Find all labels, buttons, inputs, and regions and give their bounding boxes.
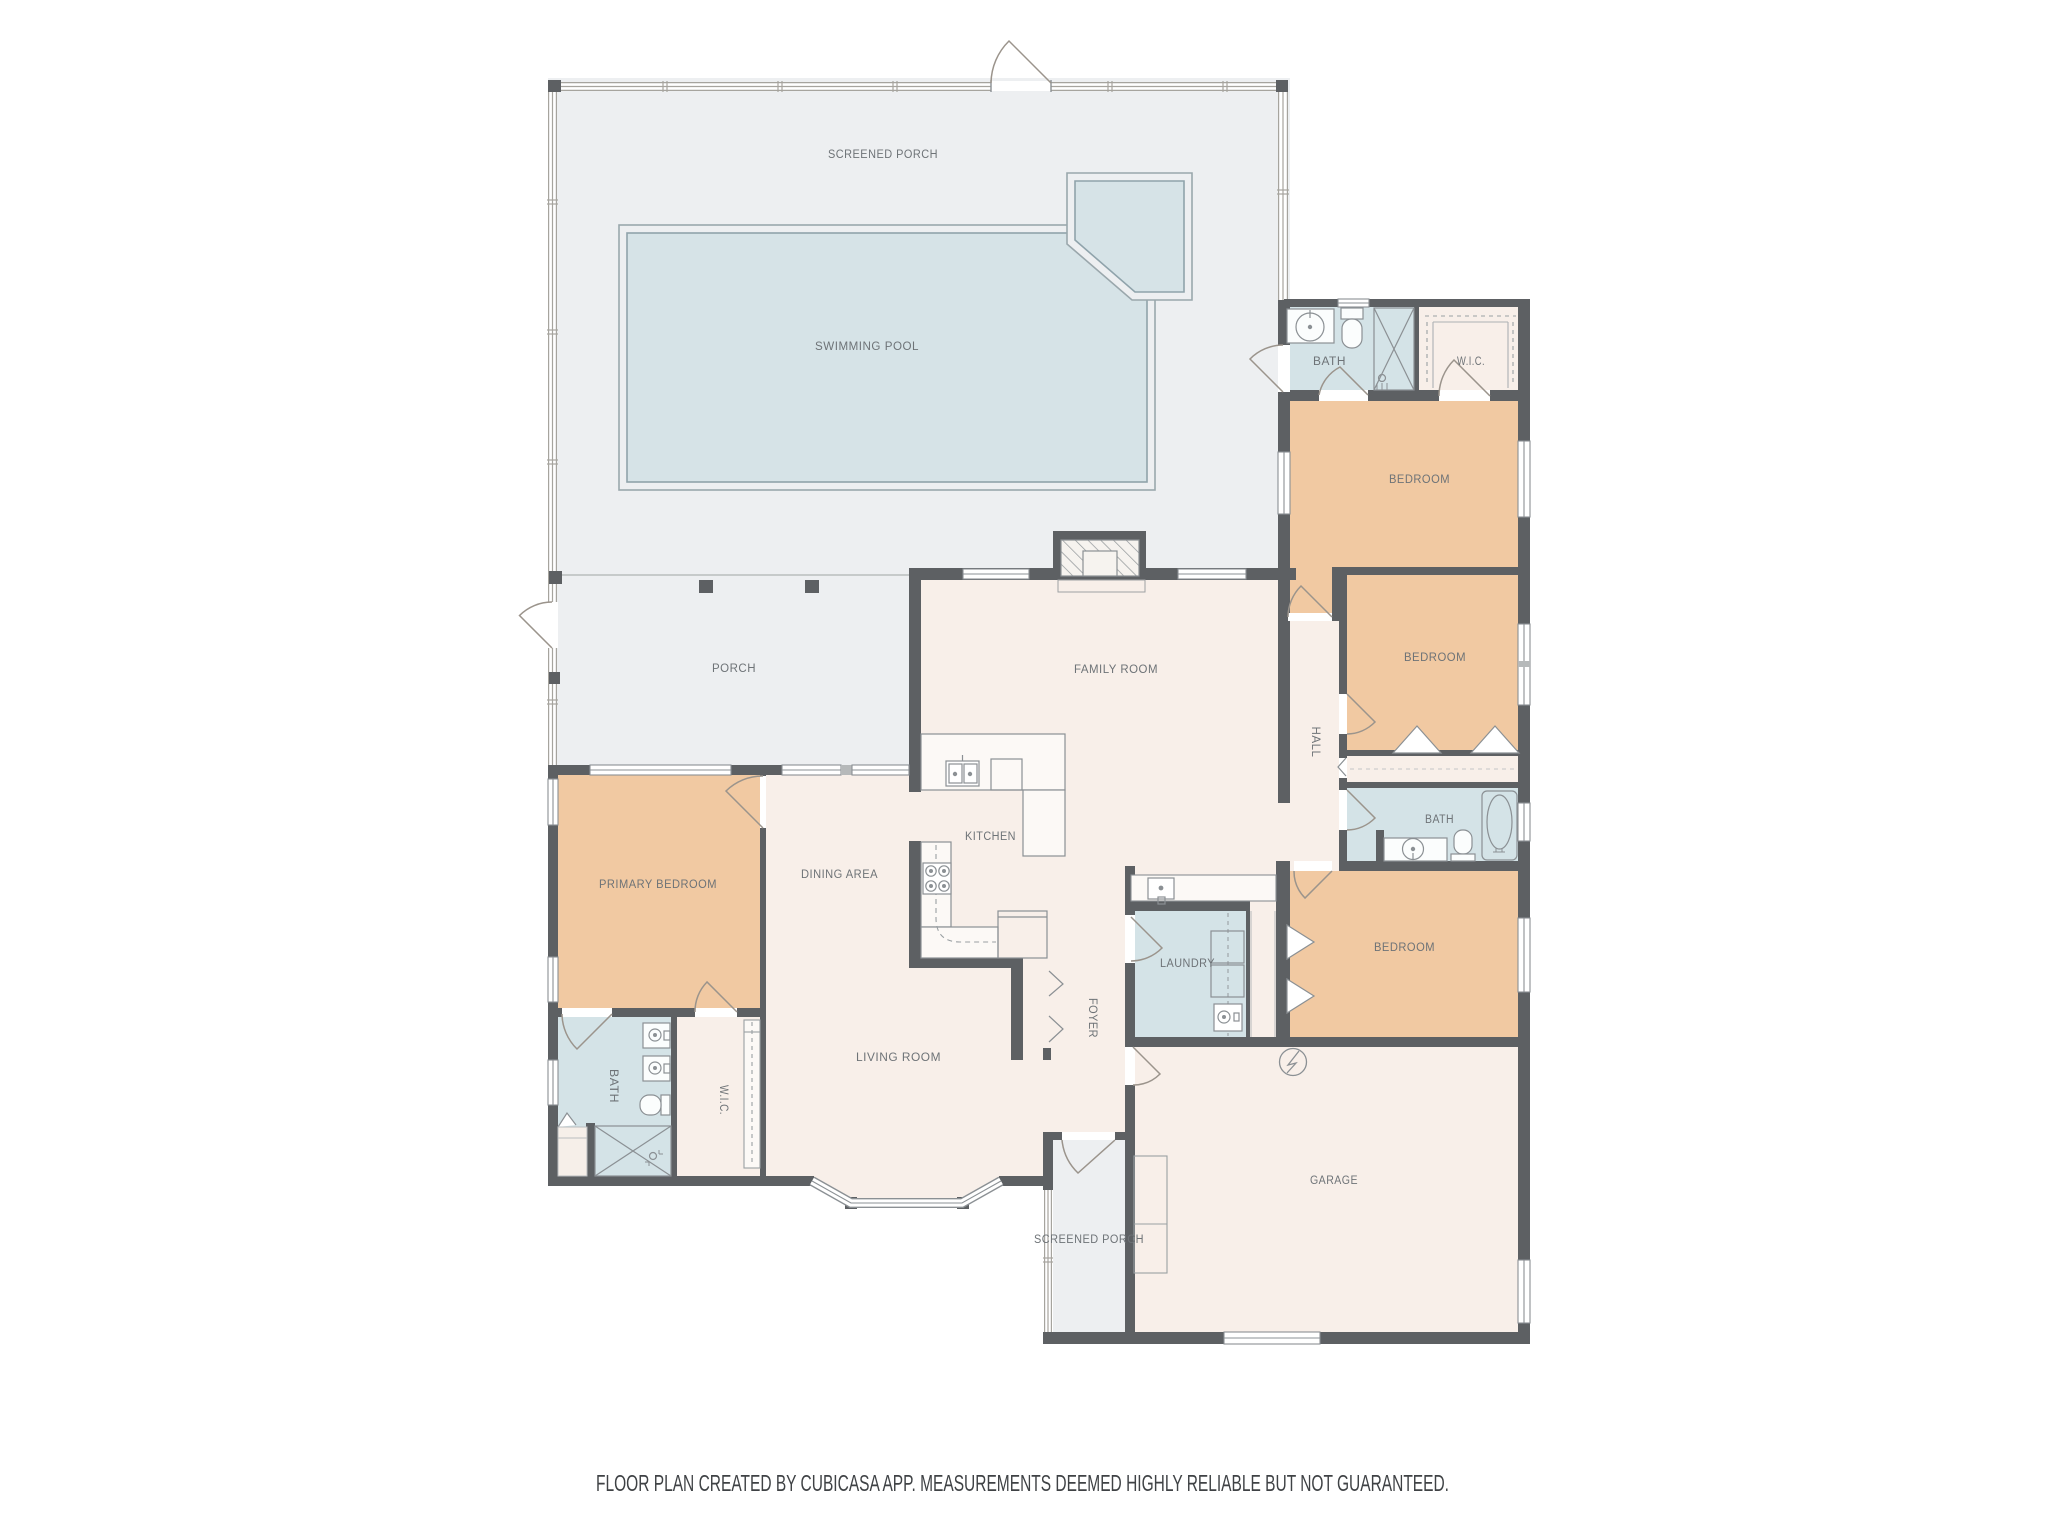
svg-text:HALL: HALL bbox=[1309, 727, 1321, 758]
svg-text:BATH: BATH bbox=[1313, 356, 1346, 368]
svg-text:BEDROOM: BEDROOM bbox=[1374, 942, 1435, 954]
svg-text:DINING AREA: DINING AREA bbox=[801, 869, 878, 881]
svg-text:BATH: BATH bbox=[607, 1069, 619, 1103]
svg-text:BEDROOM: BEDROOM bbox=[1404, 652, 1466, 664]
svg-text:PORCH: PORCH bbox=[712, 663, 756, 675]
svg-text:W.I.C.: W.I.C. bbox=[1457, 356, 1485, 368]
svg-text:W.I.C.: W.I.C. bbox=[717, 1085, 729, 1115]
svg-text:GARAGE: GARAGE bbox=[1310, 1175, 1358, 1187]
svg-text:BATH: BATH bbox=[1425, 814, 1454, 826]
svg-text:SWIMMING POOL: SWIMMING POOL bbox=[815, 341, 919, 353]
svg-text:SCREENED PORCH: SCREENED PORCH bbox=[1034, 1234, 1144, 1246]
svg-text:PRIMARY BEDROOM: PRIMARY BEDROOM bbox=[599, 879, 717, 891]
svg-text:FLOOR PLAN CREATED BY CUBICASA: FLOOR PLAN CREATED BY CUBICASA APP. MEAS… bbox=[596, 1470, 1449, 1496]
svg-text:SCREENED PORCH: SCREENED PORCH bbox=[828, 149, 938, 161]
svg-text:LAUNDRY: LAUNDRY bbox=[1160, 958, 1215, 970]
svg-text:KITCHEN: KITCHEN bbox=[965, 831, 1016, 843]
svg-text:FOYER: FOYER bbox=[1086, 998, 1098, 1038]
svg-text:BEDROOM: BEDROOM bbox=[1389, 474, 1450, 486]
svg-text:LIVING ROOM: LIVING ROOM bbox=[856, 1052, 941, 1064]
svg-text:FAMILY ROOM: FAMILY ROOM bbox=[1074, 664, 1158, 676]
